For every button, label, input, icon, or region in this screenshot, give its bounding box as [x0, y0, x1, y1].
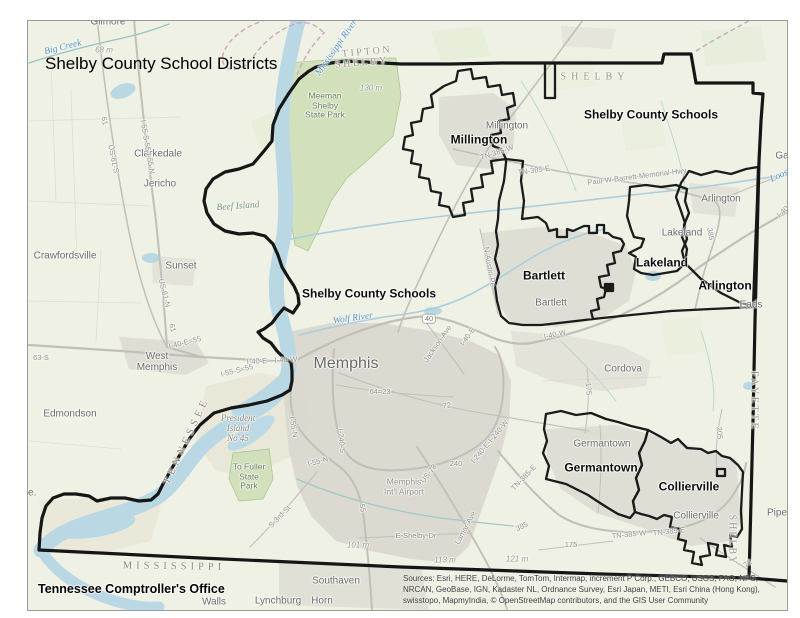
citie-label: Clarkedale — [134, 148, 182, 159]
district-label-millington: Millington — [451, 133, 508, 146]
water-label-wolf-river: Wolf River — [332, 311, 373, 327]
citie-label: Walls — [202, 596, 226, 607]
county-label-shelby-top: SHELBY — [561, 71, 630, 82]
county-label-fayette: FAYETTE — [748, 371, 759, 431]
citie-label: Gilmore — [90, 20, 125, 28]
road-label: I-40-W — [543, 329, 567, 342]
citie-label: Eads — [740, 299, 763, 310]
district-label-bartlett: Bartlett — [523, 269, 565, 282]
district-label-shelby-county-schools-north: Shelby County Schools — [584, 108, 718, 121]
road-label: 205 — [714, 426, 723, 439]
road-label: TN-385-E — [652, 526, 685, 538]
district-label-shelby-county-schools-central: Shelby County Schools — [302, 287, 436, 300]
road-label: US-61-N — [156, 278, 171, 308]
road-label: US-61-S — [106, 144, 120, 174]
road-label: 72 — [742, 558, 754, 570]
road-label: TN-385-E — [510, 463, 539, 492]
state-label-tennessee: TENNESSEE — [162, 396, 213, 487]
road-label: I-40-E — [459, 326, 478, 348]
map-canvas: Shelby County SchoolsMillingtonBartlettL… — [27, 20, 788, 611]
road-label: 63-S — [33, 354, 49, 362]
road-label: Paul-W-Barrett-Memorial-Hwy — [587, 167, 687, 187]
state-label-mississippi: MISSISSIPPI — [123, 560, 226, 574]
road-label: 72 — [442, 401, 451, 410]
road-shield-40: 40 — [422, 314, 436, 324]
citie-label: Ga — [775, 150, 788, 161]
citie-label: West Memphis — [137, 351, 178, 373]
citie-label: Sunset — [165, 260, 196, 271]
island-label-president-island: President Island No 45 — [221, 413, 255, 443]
road-label: I-40 — [775, 205, 788, 220]
elevation-label: 113 m — [434, 557, 456, 566]
area-label-beef-island: Beef Island — [216, 200, 260, 214]
citie-label: Cordova — [604, 363, 642, 374]
citie-label: Collierville — [673, 510, 719, 521]
road-label: E-Shelby-Dr — [396, 532, 437, 540]
citie-label: Arlington — [701, 193, 740, 204]
road-label: I-40-E=55 — [168, 335, 202, 351]
water-label-loosahatchie: Loosahat — [769, 161, 788, 186]
citie-label: Southaven — [312, 575, 360, 586]
elevation-label: 130 m — [360, 85, 382, 94]
citie-label: Edmondson — [43, 408, 96, 419]
road-label: S-3rd-St — [267, 504, 292, 530]
road-label: Lamar-Ave — [454, 510, 479, 546]
park-label-meeman-shelby: Meeman Shelby State Park — [305, 92, 345, 121]
road-label: Jackson-Ave — [422, 324, 453, 364]
airport-label-memphis-intl: Memphis Int'l Airport — [384, 477, 424, 496]
attribution: Tennessee Comptroller's Office — [38, 582, 225, 596]
map-labels-layer: Shelby County SchoolsMillingtonBartlettL… — [28, 21, 787, 610]
sources-credit: Sources: Esri, HERE, DeLorme, TomTom, In… — [403, 573, 788, 606]
road-label: I-240-S — [336, 428, 347, 453]
citie-label: Horn — [311, 595, 333, 606]
district-label-arlington: Arlington — [698, 279, 751, 292]
county-label-shelby-se: SHELBY — [726, 515, 737, 566]
road-label: 55 — [357, 503, 367, 513]
citie-label: Germantown — [573, 438, 630, 449]
road-label: 61 — [99, 116, 109, 126]
sources-line: swisstopo, MapmyIndia, © OpenStreetMap c… — [403, 595, 788, 606]
road-label: N-Austin-Pe — [481, 246, 496, 287]
sources-line: Sources: Esri, HERE, DeLorme, TomTom, In… — [403, 573, 788, 584]
citie-label: Millington — [486, 120, 528, 131]
elevation-label: 101 m — [347, 542, 369, 551]
road-label: TN-385-E — [517, 165, 550, 178]
citie-label: Lakeland — [662, 227, 703, 238]
road-label: 240 — [450, 460, 463, 468]
district-label-germantown: Germantown — [564, 461, 637, 474]
road-label: I-40-E—I-40-W — [247, 355, 298, 366]
road-label: I-240-E-I-240-W — [470, 419, 511, 466]
citie-label: Jericho — [144, 178, 176, 189]
report-page: Shelby County SchoolsMillingtonBartlettL… — [0, 0, 800, 618]
citie-label: lle. — [27, 487, 36, 498]
road-label: 61 — [167, 323, 177, 333]
map-title: Shelby County School Districts — [45, 54, 277, 74]
park-label-to-fuller: To Fuller State Park — [233, 463, 266, 492]
road-label: 385 — [515, 521, 530, 534]
elevation-label: 121 m — [506, 556, 528, 565]
road-label: I-55-N — [287, 416, 299, 438]
citie-label: Pipe — [767, 507, 787, 518]
citie-label: Lynchburg — [255, 595, 301, 606]
road-label: 64=23 — [369, 388, 390, 396]
district-label-collierville: Collierville — [659, 480, 720, 493]
citie-label: Bartlett — [535, 297, 567, 308]
sources-line: NRCAN, GeoBase, IGN, Kadaster NL, Ordnan… — [403, 584, 788, 595]
road-label: 175 — [565, 541, 578, 549]
road-label: TN-385-W — [611, 529, 646, 541]
road-label: I-55-S-55-I-55-N — [138, 119, 156, 174]
citie-label: Crawfordsville — [34, 250, 97, 261]
city-label-memphis: Memphis — [314, 355, 379, 373]
road-label: 175 — [583, 382, 592, 395]
district-label-lakeland: Lakeland — [636, 256, 688, 269]
road-label: I-55-N — [307, 455, 329, 469]
road-label: 385 — [705, 227, 715, 241]
road-label: US-78 — [419, 463, 439, 485]
